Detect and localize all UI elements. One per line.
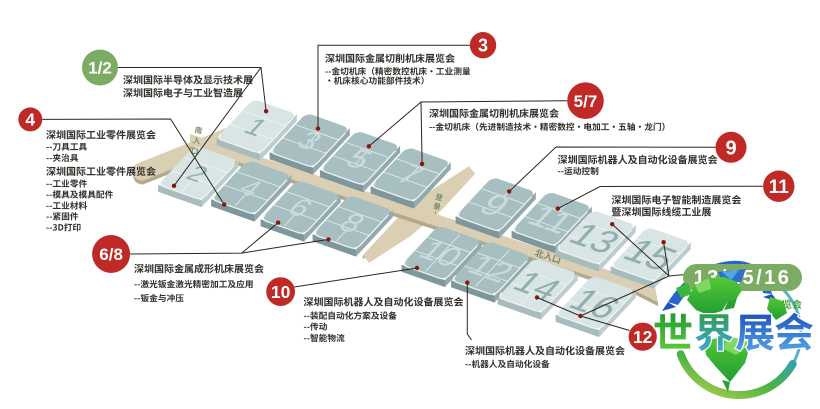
svg-text:5/7: 5/7 bbox=[574, 92, 598, 111]
svg-text:3: 3 bbox=[478, 36, 488, 56]
svg-text:4: 4 bbox=[25, 110, 35, 130]
svg-text:1/2: 1/2 bbox=[88, 59, 112, 78]
svg-text:11: 11 bbox=[769, 177, 790, 198]
svg-text:12: 12 bbox=[633, 327, 653, 347]
svg-text:10: 10 bbox=[271, 282, 291, 302]
svg-text:9: 9 bbox=[725, 138, 736, 160]
svg-text:6/8: 6/8 bbox=[99, 245, 123, 264]
